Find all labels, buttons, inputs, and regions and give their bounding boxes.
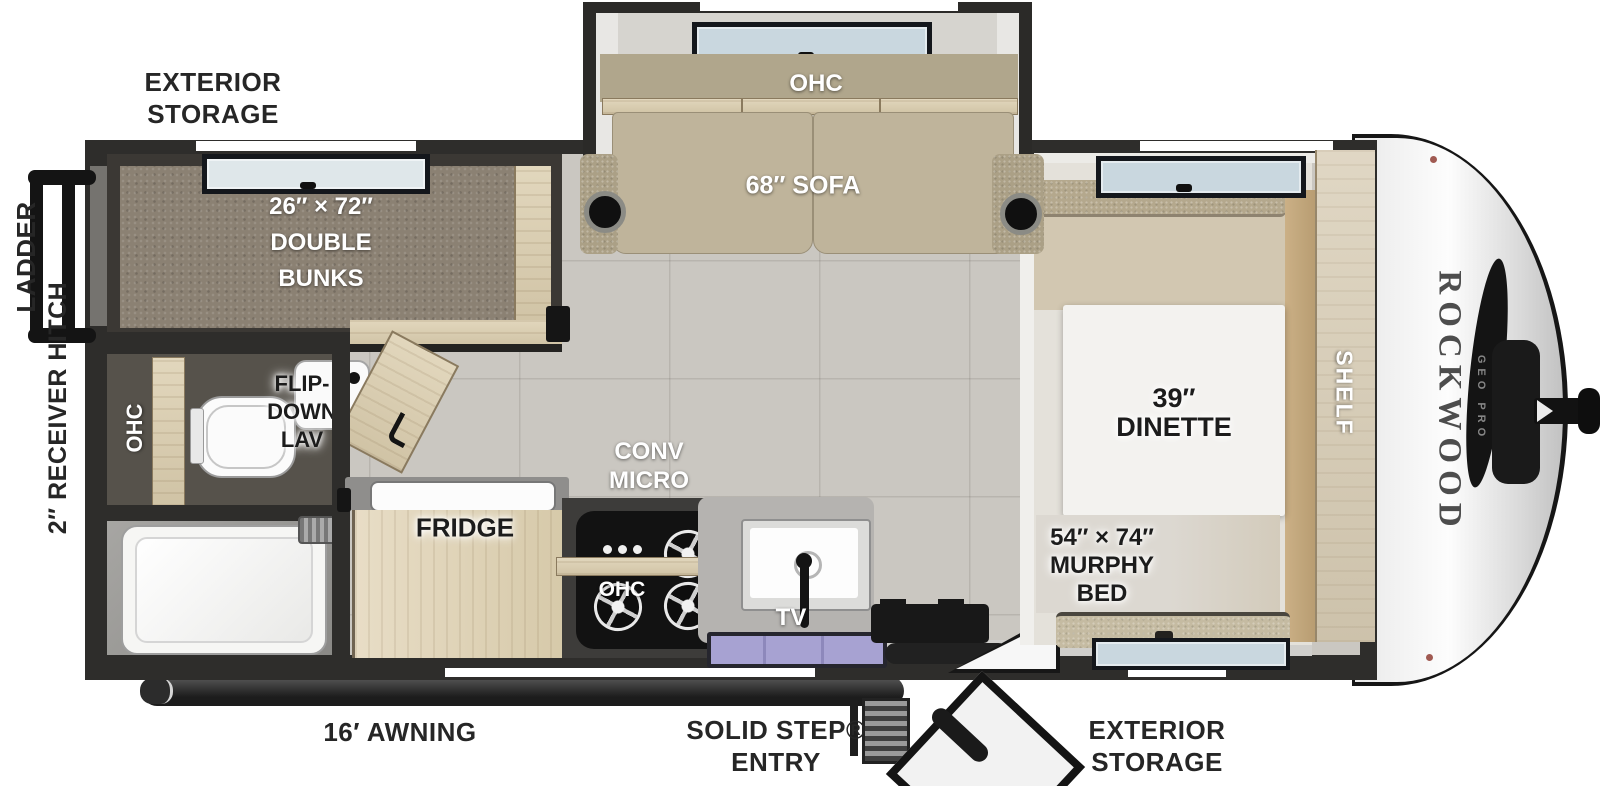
dinette-right-wood-panel (1285, 190, 1315, 642)
bunk-exterior-window-strip (196, 141, 416, 151)
label-receiver-hitch: 2″ RECEIVER HITCH (42, 282, 74, 534)
dinette-window-latch (1176, 184, 1192, 192)
sink-faucet-base (796, 553, 812, 569)
bath-top-wall (107, 332, 350, 354)
sofa-cupholder-left (584, 191, 626, 233)
label-sofa-ohc: OHC (789, 70, 842, 98)
label-exterior-storage-rear: EXTERIOR STORAGE (118, 66, 308, 130)
bunk-ladder (514, 166, 551, 328)
awning-roll (142, 676, 904, 706)
bunk-front-frame (350, 320, 562, 346)
dish-tray-divider-1 (763, 636, 766, 664)
cooktop-knob-3 (633, 545, 642, 554)
label-awning: 16′ AWNING (323, 716, 476, 748)
slideout-exterior-window-strip (700, 2, 958, 11)
label-fridge: FRIDGE (416, 513, 514, 544)
label-sofa: 68″ SOFA (746, 172, 861, 201)
cap-screw-bottom (1426, 654, 1433, 661)
toilet-tank (190, 408, 204, 464)
murphy-bed-window (1092, 638, 1290, 670)
dish-tray (707, 632, 887, 668)
bunk-corner-bracket (546, 306, 570, 342)
label-tv: TV (776, 604, 807, 632)
bath-cabinet (152, 357, 185, 507)
dinette-cushion (1034, 210, 1285, 310)
bunk-window (202, 154, 430, 194)
bunk-window-latch (300, 182, 316, 189)
cooktop-knob-1 (603, 545, 612, 554)
wardrobe-hook-icon (386, 412, 417, 448)
dinette-window (1096, 156, 1306, 198)
propane-cover (1492, 340, 1540, 484)
bottom-wall-strip-left (445, 668, 815, 677)
hamper-tab-1 (880, 599, 906, 606)
entry-step-platform (886, 671, 1085, 786)
cooktop-knob-2 (618, 545, 627, 554)
label-dinette: 39″ DINETTE (1116, 384, 1232, 442)
tub-basin (135, 537, 313, 643)
label-solid-step-entry: SOLID STEP® ENTRY (656, 714, 896, 778)
rv-floorplan: ROCKWOOD GEO PRO 26″ × 72″ DOUBLE BUNKS … (0, 0, 1600, 786)
label-flip-down-lav: FLIP- DOWN LAV (267, 370, 337, 454)
awning-roll-endcap (140, 678, 173, 704)
label-bath-ohc: OHC (122, 404, 148, 453)
label-conv-micro: CONV MICRO (609, 437, 689, 495)
label-range-ohc: OHC (599, 578, 646, 602)
rear-storage-strip (90, 166, 107, 326)
label-double-bunks: 26″ × 72″ DOUBLE BUNKS (269, 189, 373, 297)
brand-geo-pro: GEO PRO (1475, 355, 1487, 441)
brand-rockwood: ROCKWOOD (1431, 270, 1468, 533)
hitch-ball-mount (1578, 388, 1600, 434)
hamper-tab-2 (938, 599, 964, 606)
range-ohc-shelf (556, 557, 704, 576)
dinette-exterior-window-strip (1140, 141, 1333, 151)
sofa-cupholder-right (1000, 193, 1042, 235)
label-exterior-storage-front: EXTERIOR STORAGE (1057, 714, 1257, 778)
stove-grate-hamper (871, 604, 989, 643)
tub-icon (121, 525, 327, 655)
label-shelf: SHELF (1331, 350, 1358, 435)
fridge-lid-tray (370, 481, 556, 512)
cap-screw-top (1430, 156, 1437, 163)
label-murphy-bed: 54″ × 74″ MURPHY BED (1050, 524, 1154, 608)
fridge-corner-bracket (337, 488, 351, 512)
dish-tray-divider-2 (821, 636, 824, 664)
label-ladder: LADDER (10, 201, 42, 312)
